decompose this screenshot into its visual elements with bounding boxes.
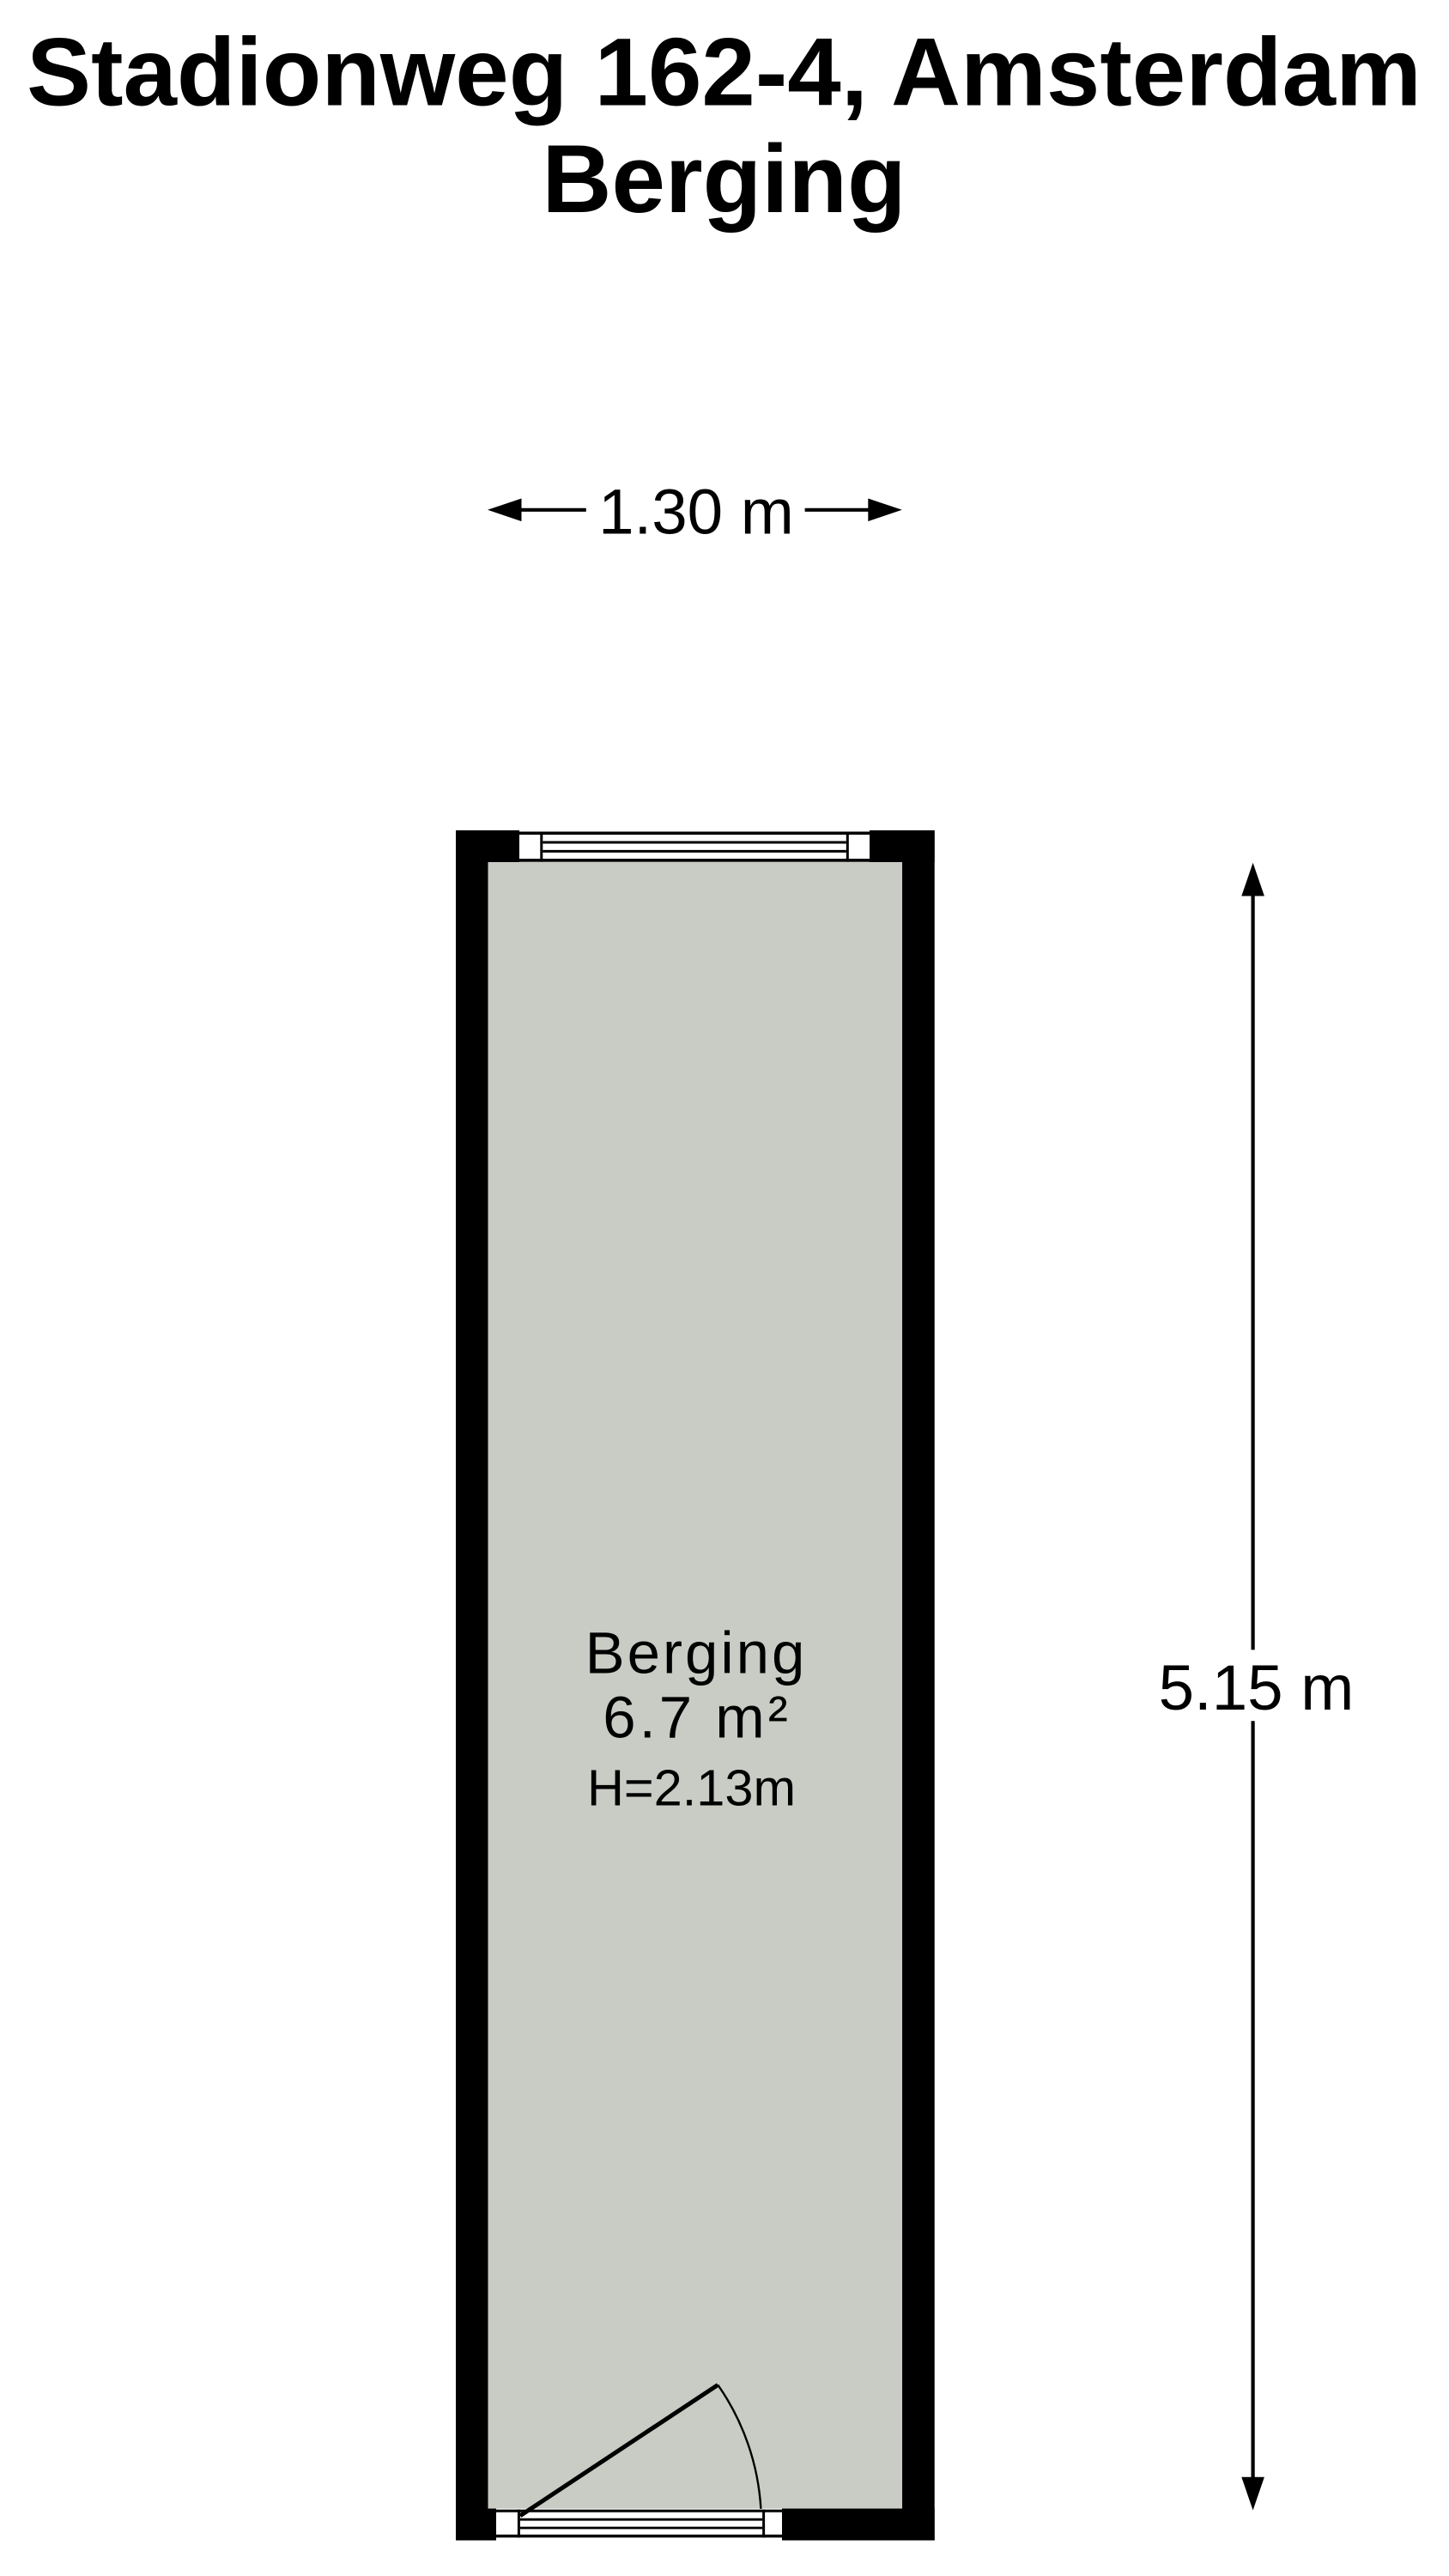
svg-text:6.7 m²: 6.7 m² (603, 1685, 791, 1751)
svg-text:Stadionweg 162-4, Amsterdam: Stadionweg 162-4, Amsterdam (27, 17, 1422, 125)
svg-text:5.15 m: 5.15 m (1159, 1652, 1355, 1723)
svg-text:Berging: Berging (542, 125, 906, 233)
svg-text:Berging: Berging (585, 1619, 808, 1686)
svg-text:1.30 m: 1.30 m (598, 477, 794, 548)
svg-text:H=2.13m: H=2.13m (587, 1759, 796, 1816)
